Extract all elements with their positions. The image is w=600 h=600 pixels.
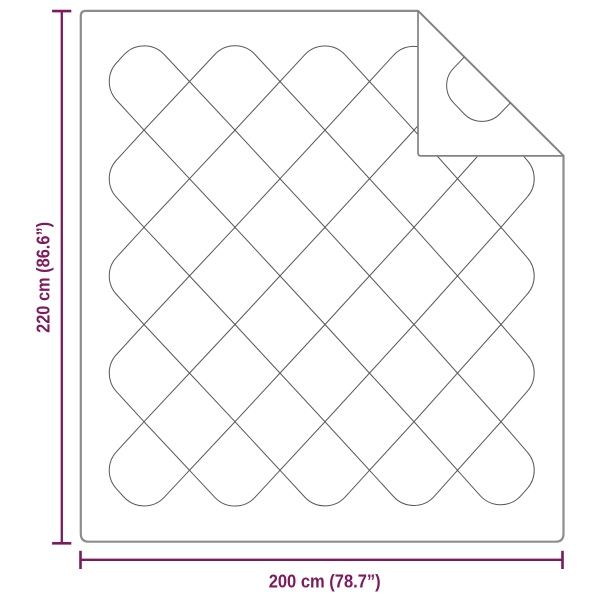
svg-text:220 cm (86.6”): 220 cm (86.6”)	[33, 222, 54, 333]
svg-text:200 cm (78.7”): 200 cm (78.7”)	[269, 570, 381, 591]
